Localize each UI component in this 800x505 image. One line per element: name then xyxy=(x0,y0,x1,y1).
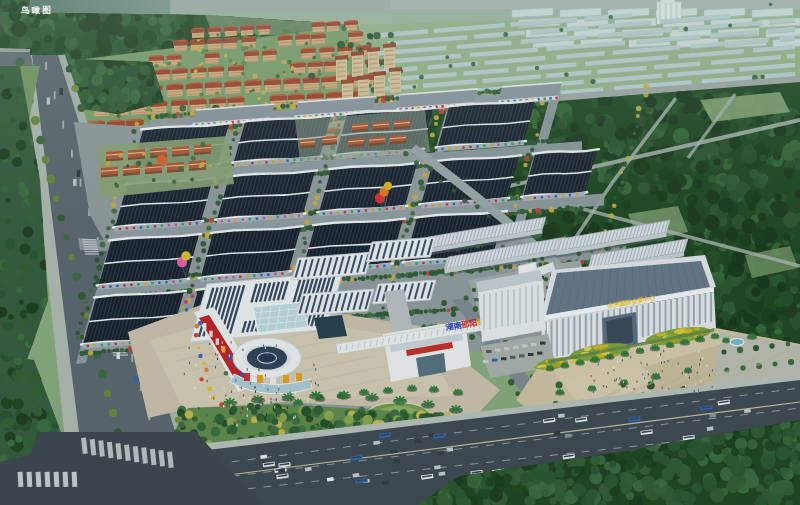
svg-text:鸟瞰图: 鸟瞰图 xyxy=(20,5,53,15)
